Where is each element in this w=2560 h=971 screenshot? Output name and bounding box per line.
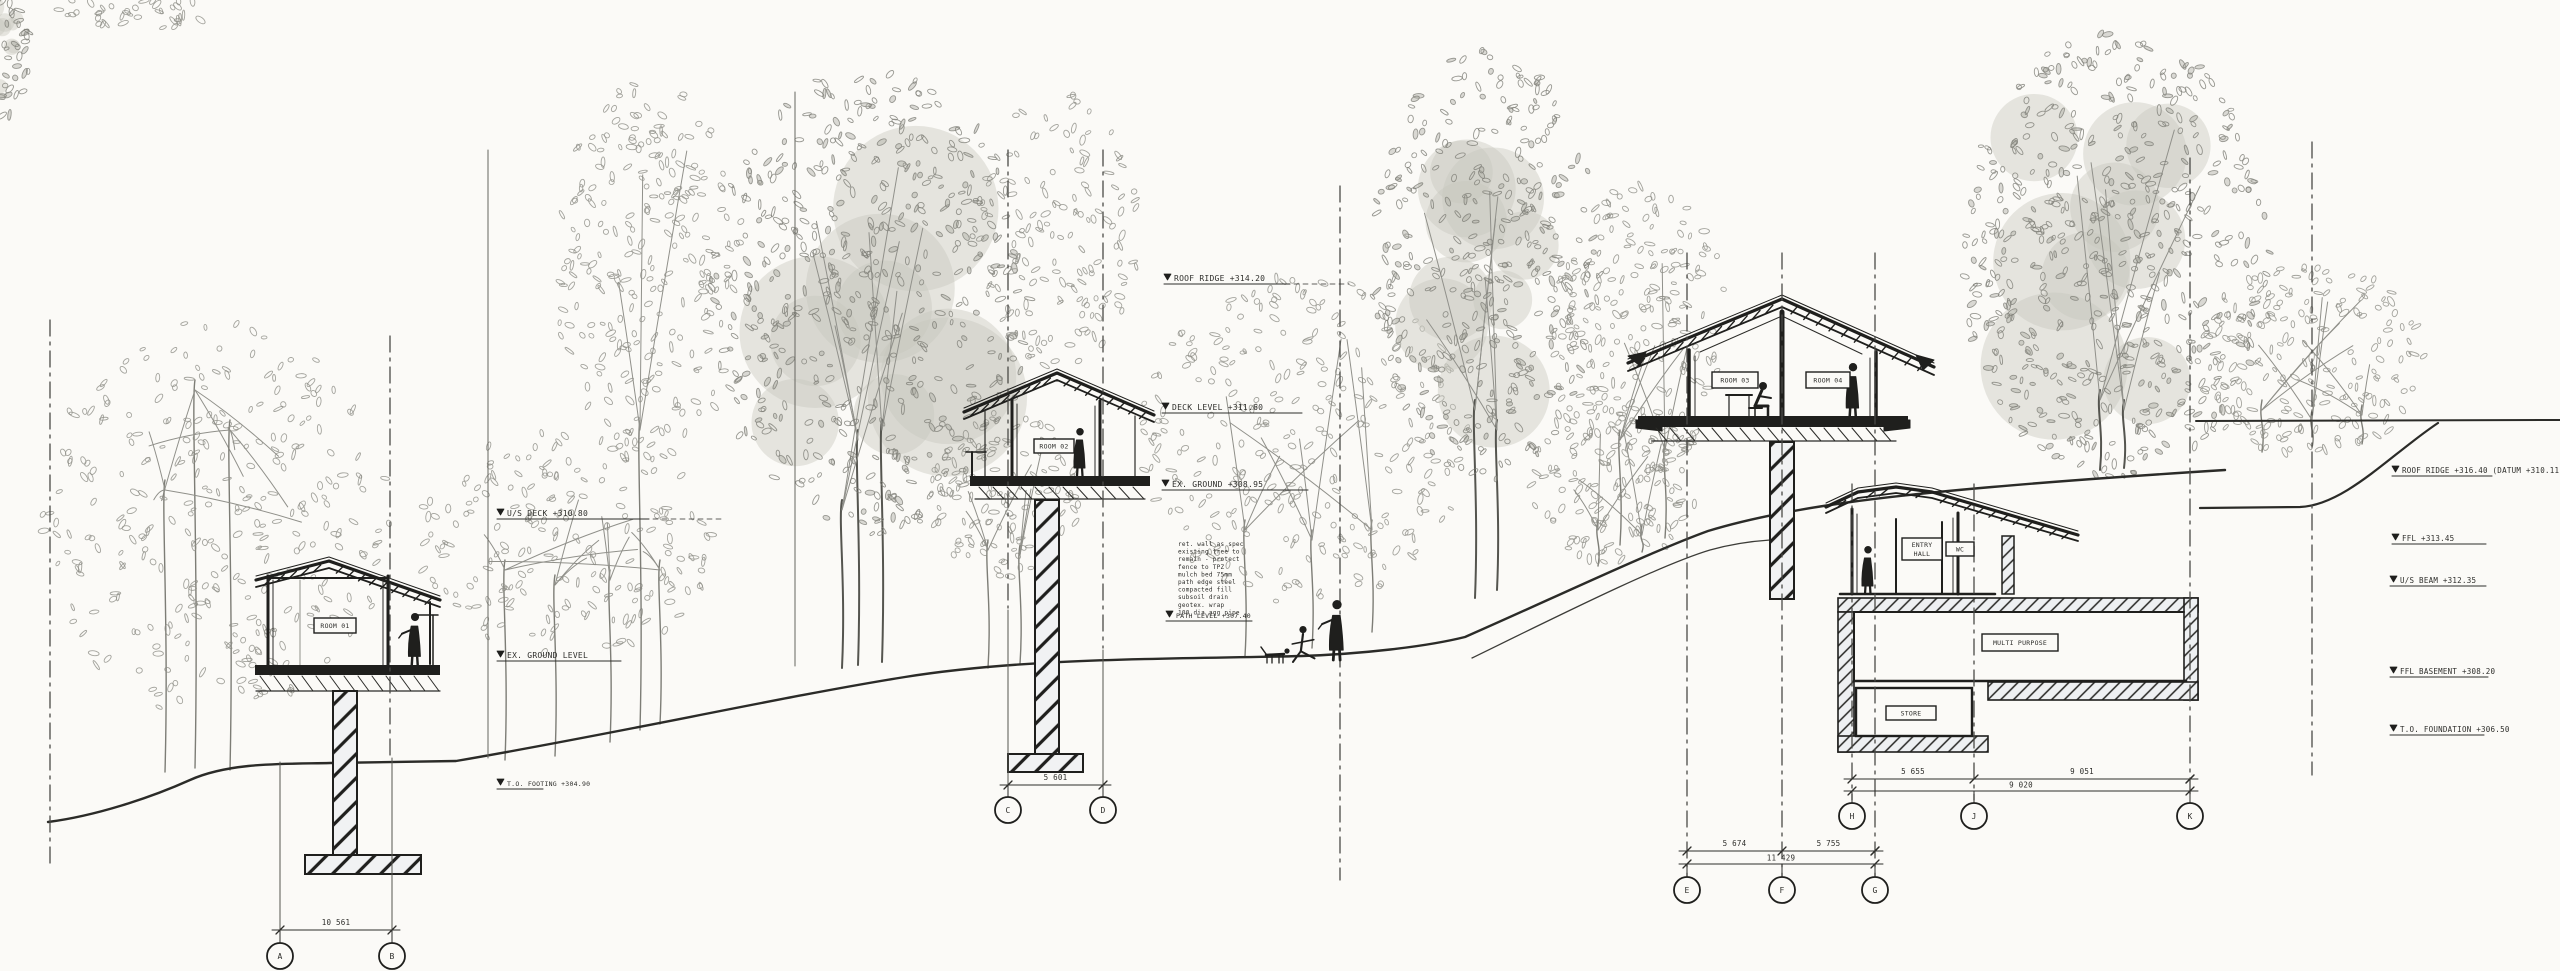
leaf: [2056, 63, 2061, 74]
person-leg: [417, 656, 418, 665]
leaf: [2148, 381, 2152, 387]
leaf: [1428, 367, 1439, 372]
level-annotation-text: FFL +313.45: [2402, 534, 2454, 543]
leaf: [2038, 153, 2043, 159]
level-annotation-text: DECK LEVEL +311.60: [1172, 403, 1263, 412]
level-annotation: ROOF RIDGE +316.40 (DATUM +310.11): [2392, 466, 2560, 476]
grid-bubble-text: G: [1872, 886, 1877, 895]
leaf: [2192, 346, 2196, 354]
leaf: [1521, 179, 1528, 184]
dog-body: [1266, 654, 1284, 655]
note-line: mulch bed 75mm: [1178, 571, 1232, 578]
grid-bubble-text: C: [1005, 806, 1010, 815]
leaf: [2161, 299, 2167, 310]
drawing-canvas: U/S DECK +310.80EX. GROUND LEVELT.O. FOO…: [0, 0, 2560, 971]
person-head: [1076, 428, 1084, 436]
person-leg: [1865, 586, 1866, 594]
note-line: compacted fill: [1178, 587, 1232, 594]
grid-bubble-text: F: [1779, 886, 1784, 895]
leaf: [1528, 140, 1534, 148]
leaf: [952, 436, 963, 442]
leaf: [871, 236, 876, 247]
level-annotation-text: EX. GROUND +308.95: [1172, 480, 1263, 489]
foliage-mass: [1991, 94, 2078, 181]
floor-band: [1988, 682, 2198, 700]
note-line: path edge steel: [1178, 579, 1236, 586]
person-head: [1849, 363, 1857, 371]
level-annotation-text: FFL BASEMENT +308.20: [2400, 667, 2496, 676]
leaf: [756, 388, 761, 398]
leaf: [1385, 310, 1390, 316]
leaf: [846, 309, 852, 317]
leaf: [1464, 195, 1468, 205]
floor-slab: [970, 476, 1150, 486]
hatched-pillar: [1035, 500, 1059, 755]
foliage-mass: [770, 296, 860, 386]
leaf: [2047, 420, 2055, 423]
floor-slab: [1638, 416, 1908, 427]
dim-text: 5 655: [1901, 767, 1925, 776]
note-line: subsoil drain: [1178, 594, 1228, 601]
leaf: [1506, 409, 1516, 413]
grid-bubble-text: B: [389, 952, 394, 961]
leaf: [945, 199, 950, 208]
leaf: [2197, 345, 2203, 353]
dim-text: 11 429: [1767, 854, 1796, 863]
leaf: [2001, 247, 2006, 254]
leaf: [1990, 161, 1997, 165]
leaf: [710, 276, 713, 283]
person-leg: [1339, 650, 1340, 660]
level-annotation-text: EX. GROUND LEVEL: [507, 651, 588, 660]
leaf: [0, 94, 7, 99]
leaf: [966, 384, 976, 387]
grid-bubble-text: A: [277, 952, 282, 961]
hatched-pillar: [333, 691, 357, 855]
floor-slab: [255, 665, 440, 675]
leaf: [2059, 167, 2064, 177]
leaf: [1413, 129, 1418, 140]
level-annotation-text: ROOF RIDGE +314.20: [1174, 274, 1265, 283]
person-head: [1864, 546, 1872, 554]
hatched-footing: [305, 855, 421, 874]
person-leg: [1082, 468, 1083, 476]
leaf: [865, 490, 875, 495]
leaf: [897, 161, 906, 167]
dim-text: 5 674: [1723, 839, 1747, 848]
person-leg: [1850, 408, 1851, 417]
leaf: [2003, 208, 2009, 214]
roof-slab-band: [1838, 598, 2198, 612]
leaf: [967, 267, 971, 274]
room-tag-text: ROOM 04: [1813, 377, 1842, 385]
level-annotation-text: T.O. FOUNDATION +306.50: [2400, 725, 2510, 734]
person-leg: [1077, 468, 1078, 476]
room-tag: ROOM 02: [1034, 439, 1074, 453]
leaf: [752, 306, 757, 312]
leaf: [1398, 385, 1406, 391]
level-annotation-text: U/S DECK +310.80: [507, 509, 588, 518]
leaf: [1999, 183, 2003, 193]
leaf: [2043, 368, 2049, 374]
dim-text: 10 561: [322, 918, 351, 927]
note-line: geotex. wrap: [1178, 602, 1224, 609]
dim-text: 5 755: [1817, 839, 1841, 848]
note-line: ret. wall as spec: [1178, 541, 1244, 548]
leaf: [5, 20, 9, 28]
person-leg: [412, 656, 413, 665]
leaf: [1418, 363, 1421, 372]
leaf: [2262, 212, 2268, 220]
leaf: [1472, 220, 1479, 223]
level-annotation: T.O. FOUNDATION +306.50: [2390, 725, 2510, 735]
leaf: [835, 282, 840, 293]
leaf: [891, 512, 896, 522]
leaf: [2109, 178, 2114, 185]
leaf: [2159, 198, 2165, 204]
dog-head: [1284, 648, 1289, 653]
grid-bubble-text: E: [1684, 886, 1689, 895]
leaf: [996, 168, 999, 175]
level-annotation: U/S BEAM +312.35: [2390, 576, 2486, 586]
room-tag: STORE: [1886, 706, 1936, 720]
leaf: [1490, 390, 1494, 397]
hatched-pier: [2002, 536, 2014, 594]
room-tag-text: MULTI PURPOSE: [1993, 639, 2047, 647]
note-line: fence to TPZ: [1178, 564, 1224, 571]
leaf: [1549, 340, 1554, 350]
room-tag: ROOM 01: [314, 618, 356, 633]
room-tag: ROOM 03: [1712, 372, 1758, 388]
room-tag-text: HALL: [1914, 550, 1931, 558]
dim-text: 9 020: [2009, 781, 2033, 790]
leaf: [1983, 365, 1993, 370]
leaf: [2153, 190, 2159, 193]
room-tag-text: ROOM 01: [320, 622, 349, 630]
grid-bubble-text: D: [1100, 806, 1105, 815]
room-tag: MULTI PURPOSE: [1982, 634, 2058, 651]
note-line: remain - protect: [1178, 556, 1240, 563]
room-tag-text: WC: [1956, 546, 1964, 554]
note-line: existing tree to: [1178, 549, 1240, 556]
person-coat: [1862, 558, 1873, 586]
leaf: [1994, 229, 1998, 239]
hatched-footing: [1008, 754, 1083, 772]
person-leg: [1855, 408, 1856, 417]
room-tag-text: ROOM 03: [1720, 377, 1749, 385]
dim-text: 5 601: [1044, 773, 1068, 782]
leaf: [748, 176, 752, 184]
leaf: [2094, 255, 2097, 260]
grid-bubble-text: J: [1971, 812, 1976, 821]
leaf: [916, 160, 921, 166]
room-tag-text: ROOM 02: [1039, 443, 1068, 451]
lower-floor-band: [1838, 736, 1988, 752]
person-leg: [1333, 650, 1334, 660]
note-line: 100 dia agg pipe: [1178, 609, 1240, 616]
level-annotation: T.O. FOOTING +304.90: [497, 779, 590, 789]
level-annotation: FFL BASEMENT +308.20: [2390, 667, 2496, 677]
grid-bubble-text: K: [2187, 812, 2192, 821]
person-head: [1759, 382, 1767, 390]
person-leg: [1870, 586, 1871, 594]
leaf: [1383, 243, 1389, 253]
room-tag-text: ENTRY: [1912, 541, 1933, 549]
leaf: [932, 321, 937, 329]
level-annotation-text: U/S BEAM +312.35: [2400, 576, 2476, 585]
leaf: [915, 265, 921, 272]
leaf: [906, 204, 911, 210]
foliage-mass: [2126, 104, 2210, 188]
level-annotation-text: ROOF RIDGE +316.40 (DATUM +310.11): [2402, 466, 2560, 475]
leaf: [727, 347, 733, 352]
level-annotation-text: T.O. FOOTING +304.90: [507, 780, 590, 788]
dim-text: 9 051: [2070, 767, 2094, 776]
leaf: [782, 162, 787, 166]
leaf: [2030, 382, 2036, 386]
site-section-drawing: U/S DECK +310.80EX. GROUND LEVELT.O. FOO…: [0, 0, 2560, 971]
room-tag: ROOM 04: [1806, 372, 1850, 388]
leaf: [12, 63, 22, 69]
person-coat: [1074, 440, 1085, 468]
child-head: [1299, 626, 1306, 633]
room-tag: ENTRYHALL: [1902, 538, 1942, 560]
person-head: [1332, 600, 1341, 609]
leaf: [827, 364, 832, 367]
leaf: [2131, 470, 2137, 474]
room-tag-text: STORE: [1901, 710, 1922, 718]
person-head: [411, 613, 419, 621]
leaf: [2211, 412, 2217, 419]
leaf: [2100, 295, 2108, 299]
grid-bubble-text: H: [1849, 812, 1854, 821]
room-tag: WC: [1946, 542, 1974, 556]
